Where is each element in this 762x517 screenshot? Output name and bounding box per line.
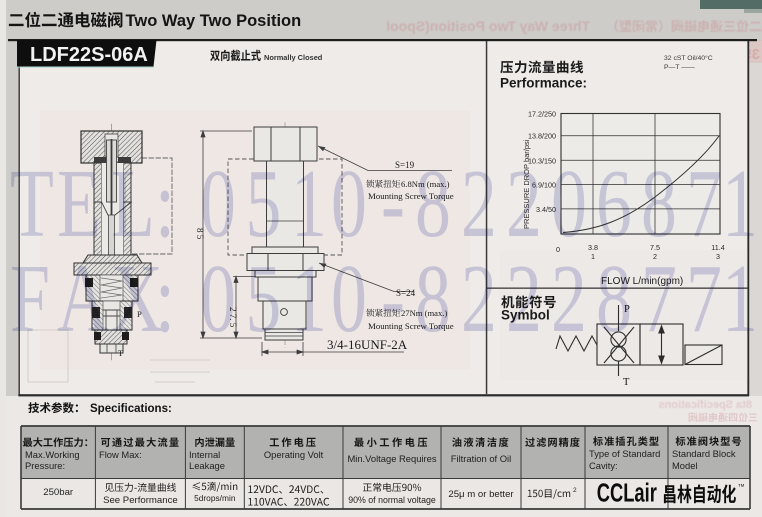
svg-text:Filtration of Oil: Filtration of Oil: [451, 453, 511, 464]
svg-text:25μ m or better: 25μ m or better: [448, 489, 514, 500]
svg-text:Type of Standard: Type of Standard: [589, 448, 660, 459]
svg-text:17.2/250: 17.2/250: [528, 110, 556, 119]
svg-text:Operating Volt: Operating Volt: [264, 449, 324, 460]
svg-text:P—T ——: P—T ——: [664, 64, 695, 71]
svg-text:1: 1: [591, 252, 595, 261]
svg-text:Specifications:: Specifications:: [90, 403, 172, 415]
svg-text:LDF22S-06A: LDF22S-06A: [30, 44, 148, 66]
svg-text:13.8/200: 13.8/200: [528, 132, 556, 141]
svg-text:Flow Max:: Flow Max:: [99, 449, 142, 460]
svg-text:250bar: 250bar: [43, 487, 74, 498]
svg-text:Normally Closed: Normally Closed: [264, 53, 323, 62]
svg-text:Standard Block: Standard Block: [672, 448, 736, 459]
svg-text:CCLair: CCLair: [597, 479, 657, 508]
svg-text:Internal: Internal: [189, 449, 220, 460]
svg-text:Two Way Two Position: Two Way Two Position: [126, 12, 302, 30]
svg-text:Min.Voltage Requires: Min.Voltage Requires: [347, 453, 436, 464]
svg-text:5drops/min: 5drops/min: [194, 493, 236, 503]
svg-text:90% of normal voltage: 90% of normal voltage: [348, 495, 436, 505]
svg-text:Cavity:: Cavity:: [589, 460, 618, 471]
svg-text:Max.Working: Max.Working: [25, 449, 80, 460]
svg-text:™: ™: [738, 482, 746, 491]
svg-text:Pressure:: Pressure:: [25, 460, 65, 471]
svg-text:Model: Model: [672, 460, 698, 471]
svg-text:See Performance: See Performance: [103, 495, 178, 506]
svg-text:Three Way Two Position(Spool: Three Way Two Position(Spool: [386, 18, 590, 34]
svg-text:Leakage: Leakage: [189, 460, 225, 471]
svg-text:32 cST Oil/40°C: 32 cST Oil/40°C: [664, 54, 713, 62]
svg-text:8ta Specifications: 8ta Specifications: [658, 399, 752, 411]
svg-text:TEL: 0510-82206871: TEL: 0510-82206871: [10, 151, 758, 258]
svg-text:2: 2: [573, 487, 577, 494]
svg-text:T: T: [623, 377, 630, 388]
svg-text:FAX: 0510-82228771: FAX: 0510-82228771: [10, 246, 758, 353]
svg-text:Performance:: Performance:: [500, 76, 587, 91]
